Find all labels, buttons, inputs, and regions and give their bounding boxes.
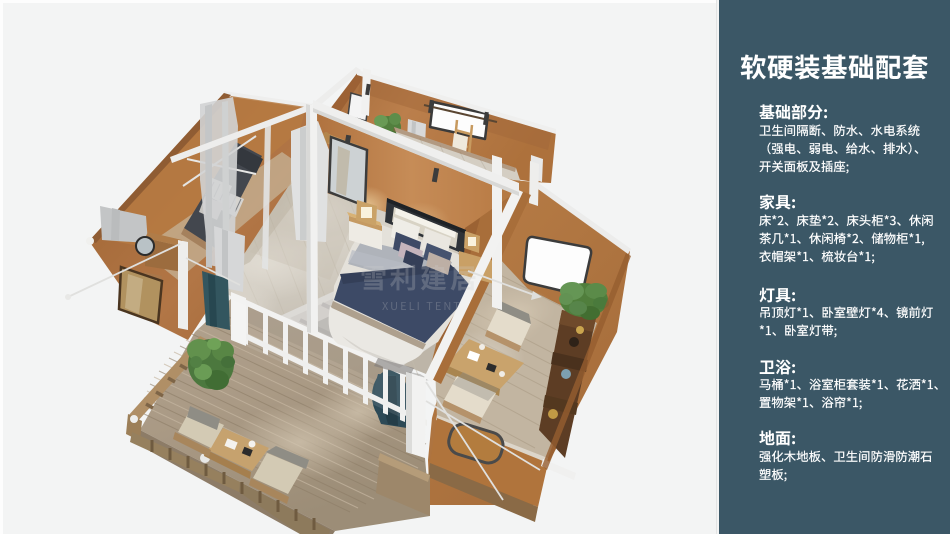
- svg-text:雪利建居: 雪利建居: [360, 257, 480, 296]
- svg-text:XUELI TENT: XUELI TENT: [382, 298, 462, 314]
